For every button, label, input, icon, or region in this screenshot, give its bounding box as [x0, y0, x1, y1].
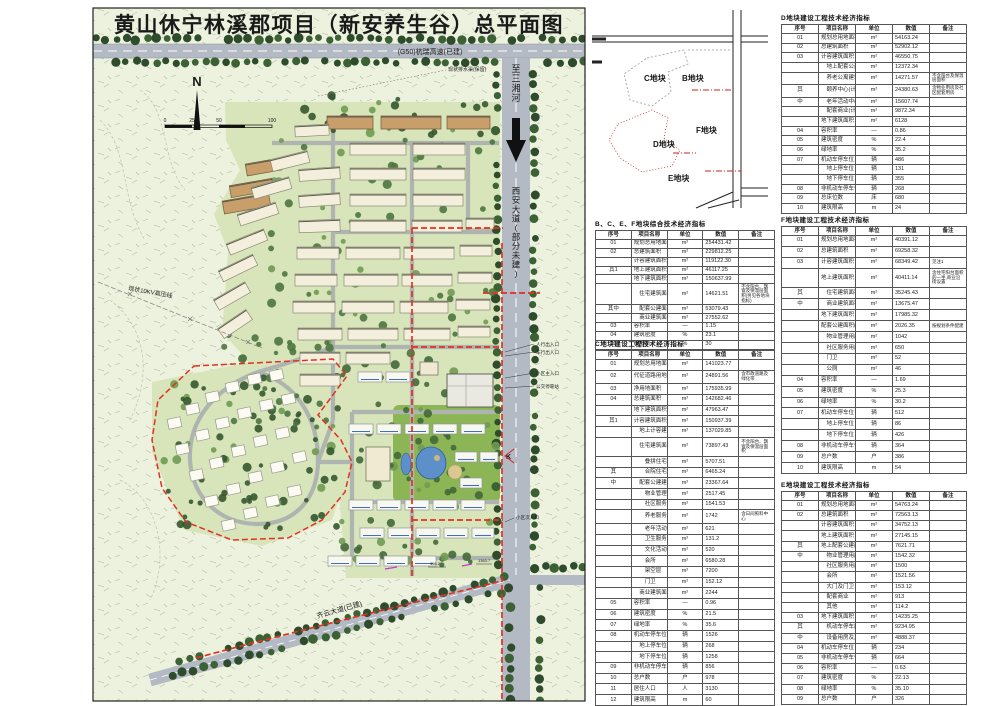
table-row: 06绿地率%30.2 [782, 397, 967, 408]
table-title-e: E地块建设工程技术经济指标 [781, 479, 967, 489]
table-cell: 254431.42 [703, 239, 739, 248]
table-cell: 总建筑面积 [631, 248, 667, 257]
table-title-comprehensive: B、C、E、F地块综合技术经济指标 [595, 218, 775, 228]
table-cell: 颐养中心(计容) [819, 85, 856, 97]
table-cell [930, 246, 967, 257]
table-row: 10建筑限高m24 [782, 204, 967, 214]
table-block-d: D地块建设工程技术经济指标 序号项目名称单位数值备注01规划总用地面积m²541… [781, 12, 967, 214]
table-block-c: C地块建设工程技术经济指标 序号项目名称单位数值备注01规划总用地面积m²141… [595, 338, 775, 706]
table-cell: 114.2 [893, 602, 930, 612]
table-row: 04容积率—0.86 [782, 126, 967, 136]
table-row: 其1计容建筑面积(小计)m²150937.39 [596, 416, 775, 427]
table-cell: 02 [596, 248, 632, 257]
table-cell: m² [856, 342, 893, 353]
table-cell [930, 613, 967, 623]
table-cell: 150937.39 [703, 416, 739, 427]
table-cell [596, 577, 632, 588]
table-cell [739, 499, 775, 510]
table-cell: 其 [782, 288, 819, 299]
table-cell: m² [667, 275, 703, 284]
table-cell: % [856, 397, 893, 408]
table-cell: 46550.75 [893, 53, 930, 63]
table-cell: 131.2 [703, 534, 739, 545]
table-cell: 326 [893, 694, 930, 704]
table-header-cell: 单位 [856, 25, 893, 34]
table-header-cell: 项目名称 [819, 492, 856, 501]
table-header-cell: 序号 [596, 231, 632, 240]
table-cell: 621 [703, 524, 739, 535]
table-cell: 地上建筑面积 [819, 531, 856, 541]
table-cell: 养老公寓建筑面积 [819, 72, 856, 84]
table-cell: 社区服务用房 [819, 562, 856, 572]
table-cell [739, 384, 775, 395]
table-row: 01规划总用地面积m²54163.24 [782, 33, 967, 43]
table-cell [739, 467, 775, 478]
table-row: 03计容建筑面积m²46550.75 [782, 53, 967, 63]
table-cell: 02 [596, 370, 632, 384]
table-header-cell: 数值 [893, 25, 930, 34]
table-row: 文化活动站m²520 [596, 545, 775, 556]
table-cell: 总户数 [631, 673, 667, 684]
table-cell: 01 [596, 239, 632, 248]
table-cell: 08 [782, 184, 819, 194]
table-cell [930, 664, 967, 674]
table-cell: 05 [596, 598, 632, 609]
table-cell: % [856, 386, 893, 397]
table-cell: 14235.25 [893, 613, 930, 623]
table-cell [739, 322, 775, 331]
table-cell [930, 397, 967, 408]
table-cell: 中 [782, 551, 819, 561]
table-row: 其中 配套公建面积m²53079.43 [596, 305, 775, 314]
table-row: 09总户数户326 [782, 694, 967, 704]
table-cell [930, 332, 967, 343]
table-cell: 268 [893, 184, 930, 194]
table-cell: 非机动车停车位 [631, 662, 667, 673]
table-cell [930, 551, 967, 561]
table-cell: 代征道路用地面积 [631, 370, 667, 384]
table-cell: 664 [893, 653, 930, 663]
table-cell [782, 364, 819, 375]
table-cell [739, 248, 775, 257]
table-cell: 17985.32 [893, 310, 930, 321]
table-cell: m² [667, 588, 703, 599]
table-cell: 54 [893, 462, 930, 473]
table-row: 其 颐养中心(计容)m²24380.63含物业用房及社区配套用房 [782, 85, 967, 97]
table-cell: 地上计容建筑面积 [631, 427, 667, 438]
table-cell [930, 97, 967, 107]
table-cell: 辆 [856, 408, 893, 419]
table-cell: m² [856, 623, 893, 633]
table-cell: 社区服务用房 [819, 342, 856, 353]
table-cell: 02 [782, 43, 819, 53]
table-cell: 容积率 [819, 375, 856, 386]
table-cell: 13675.47 [893, 299, 930, 310]
table-cell: 中 [782, 97, 819, 107]
table-cell: 1742 [703, 510, 739, 524]
table-cell: % [667, 609, 703, 620]
annex-building [420, 362, 438, 375]
table-cell [782, 310, 819, 321]
table-cell: 9872.34 [893, 107, 930, 117]
table-cell: 辆 [856, 419, 893, 430]
table-cell [930, 342, 967, 353]
table-cell: 计容建筑面积(小计) [631, 416, 667, 427]
table-cell: 居住人口 [631, 684, 667, 695]
table-cell: 配套公建面积(小计) [819, 321, 856, 332]
table-cell: m² [667, 427, 703, 438]
table-cell: 地下建筑面积(不计容) [631, 275, 667, 284]
indicator-table-e: 序号项目名称单位数值备注01规划总用地面积m²54763.2402总建筑面积m²… [781, 491, 967, 705]
table-cell: 650 [893, 342, 930, 353]
table-cell: 架空层 [631, 566, 667, 577]
table-cell: 9234.95 [893, 623, 930, 633]
table-cell: 119122.30 [703, 257, 739, 266]
table-cell [739, 673, 775, 684]
table-cell: m² [856, 85, 893, 97]
table-cell: 绿地率 [819, 146, 856, 156]
table-row: 地上建筑面积m²27145.15 [782, 531, 967, 541]
table-cell: 地上配套公建面积 [819, 62, 856, 72]
table-cell: 175935.99 [703, 384, 739, 395]
table-cell: 4888.37 [893, 633, 930, 643]
table-cell: m² [856, 592, 893, 602]
table-cell: m² [856, 116, 893, 126]
table-cell [739, 275, 775, 284]
table-header-cell: 备注 [739, 231, 775, 240]
table-cell: 会所 [819, 572, 856, 582]
key-plan: C地块 B地块 F地块 D地块 E地块 [592, 10, 768, 210]
table-cell: m² [856, 332, 893, 343]
table-cell: 04 [782, 643, 819, 653]
table-cell: 54163.24 [893, 33, 930, 43]
table-cell: m² [667, 545, 703, 556]
table-cell: 辆 [667, 662, 703, 673]
table-cell [930, 310, 967, 321]
table-cell: m² [667, 370, 703, 384]
table-cell [739, 652, 775, 663]
table-cell: 商业建筑面积 [819, 299, 856, 310]
table-row: 03容积率—1.15 [596, 322, 775, 331]
plaza-deck [448, 465, 462, 479]
table-cell [596, 314, 632, 323]
table-row: 会所m²1521.56 [782, 572, 967, 582]
table-header-cell: 备注 [930, 492, 967, 501]
table-cell: 辆 [856, 441, 893, 452]
table-cell: 规划总用地面积 [631, 239, 667, 248]
table-cell: 配套公建面积 [631, 305, 667, 314]
table-row: 计容建筑面积m²119122.30 [596, 257, 775, 266]
table-cell: % [856, 146, 893, 156]
table-cell: 计容建筑面积 [819, 521, 856, 531]
table-cell: 27552.62 [703, 314, 739, 323]
table-cell: 建筑限高 [819, 462, 856, 473]
table-cell: m² [667, 359, 703, 370]
table-cell: m² [667, 416, 703, 427]
table-cell [739, 257, 775, 266]
table-cell: 09 [596, 662, 632, 673]
table-cell: 计容建筑面积 [819, 257, 856, 268]
table-cell: 01 [782, 33, 819, 43]
table-cell: 住宅建筑面积 [631, 284, 667, 305]
table-cell: 01 [596, 359, 632, 370]
table-block-e: E地块建设工程技术经济指标 序号项目名称单位数值备注01规划总用地面积m²547… [781, 479, 967, 705]
table-header-cell: 项目名称 [631, 351, 667, 360]
table-cell: 35.2 [893, 146, 930, 156]
table-cell: 141023.77 [703, 359, 739, 370]
table-cell: % [856, 136, 893, 146]
table-cell: m² [667, 566, 703, 577]
table-cell: m² [667, 478, 703, 489]
table-cell: 辆 [856, 165, 893, 175]
table-header-cell: 序号 [782, 492, 819, 501]
table-cell: 47963.47 [703, 405, 739, 416]
table-cell [596, 284, 632, 305]
table-cell: 中 [782, 299, 819, 310]
table-cell [739, 566, 775, 577]
table-cell: 10 [782, 204, 819, 214]
table-cell [739, 239, 775, 248]
table-cell [596, 510, 632, 524]
table-cell: m² [856, 235, 893, 246]
table-cell: 1.69 [893, 375, 930, 386]
table-cell: 住宅建筑面积 [819, 288, 856, 299]
table-cell: 建筑密度 [819, 136, 856, 146]
table-cell: 03 [782, 53, 819, 63]
table-cell: 户 [667, 673, 703, 684]
table-cell [596, 437, 632, 456]
table-row: 中 物业管理用房m²1542.32 [782, 551, 967, 561]
table-cell: 见注1 [930, 257, 967, 268]
table-cell: 中 [596, 478, 632, 489]
table-row: 其 合院住宅m²6465.24 [596, 467, 775, 478]
table-cell [596, 545, 632, 556]
table-row: 计容建筑面积m²34752.13 [782, 521, 967, 531]
table-cell: 3130 [703, 684, 739, 695]
table-cell: m² [856, 500, 893, 510]
table-cell: m² [856, 43, 893, 53]
table-cell: 30.2 [893, 397, 930, 408]
table-cell [930, 116, 967, 126]
table-cell [930, 684, 967, 694]
table-cell: 913 [893, 592, 930, 602]
table-cell: 07 [782, 408, 819, 419]
table-cell: 69258.32 [893, 246, 930, 257]
table-row: 02总建筑面积m²229812.25 [596, 248, 775, 257]
table-cell: 150637.99 [703, 275, 739, 284]
table-cell: 容积率 [819, 664, 856, 674]
svg-text:100: 100 [268, 118, 277, 124]
table-cell: 386 [893, 452, 930, 463]
table-cell: 地上建筑面积 [631, 266, 667, 275]
table-cell: 床 [856, 194, 893, 204]
table-cell: m² [667, 556, 703, 567]
table-cell [930, 592, 967, 602]
table-header-cell: 项目名称 [631, 231, 667, 240]
table-cell: 1500 [893, 562, 930, 572]
table-cell: m² [856, 364, 893, 375]
table-cell [930, 386, 967, 397]
table-row: 01规划总用地面积m²40391.12 [782, 235, 967, 246]
table-cell: 54763.24 [893, 500, 930, 510]
table-cell: 23367.64 [703, 478, 739, 489]
table-row: 地下建筑面积m²17985.32 [782, 310, 967, 321]
table-row: 社区服务用房m²1541.53 [596, 499, 775, 510]
table-cell: 04 [782, 375, 819, 386]
table-cell [596, 275, 632, 284]
table-cell [739, 427, 775, 438]
table-cell: 08 [596, 630, 632, 641]
table-cell: 06 [782, 664, 819, 674]
table-cell: — [667, 322, 703, 331]
table-cell [930, 452, 967, 463]
table-row: 地下停车位辆355 [782, 175, 967, 185]
table-cell: 1258 [703, 652, 739, 663]
table-cell: 含日间照料中心 [739, 510, 775, 524]
table-cell: 物业管理用房 [631, 489, 667, 500]
table-cell [739, 577, 775, 588]
table-cell: 52902.12 [893, 43, 930, 53]
table-cell: m [856, 204, 893, 214]
table-cell: 地上建筑面积 [819, 268, 856, 288]
table-cell [930, 375, 967, 386]
table-cell [782, 531, 819, 541]
table-cell: 计容建筑面积 [631, 257, 667, 266]
table-row: 住宅建筑面积m²73897.43不含阳台、飘窗及保温层面积 [596, 437, 775, 456]
svg-text:N: N [192, 74, 201, 89]
table-row: 03净用地面积m²175935.99 [596, 384, 775, 395]
table-cell [930, 107, 967, 117]
table-cell [739, 489, 775, 500]
table-cell: 机动车停车位 [819, 643, 856, 653]
table-cell: 268 [703, 641, 739, 652]
table-cell: 25.3 [893, 386, 930, 397]
table-cell [739, 588, 775, 599]
table-row: 地下停车位辆1258 [596, 652, 775, 663]
table-row: 地下建筑面积(不计容)m²150637.99 [596, 275, 775, 284]
table-cell: 09 [782, 694, 819, 704]
table-header-cell: 序号 [782, 25, 819, 34]
table-cell: 0.63 [893, 664, 930, 674]
table-row: 住宅建筑面积m²14621.51不含阳台、飘窗及保温层面积(另见各地块指标) [596, 284, 775, 305]
table-cell: 地下建筑面积 [819, 116, 856, 126]
table-cell [739, 641, 775, 652]
table-cell: 物业管理用房 [819, 332, 856, 343]
table-cell: 总建筑面积 [819, 246, 856, 257]
table-cell: 总建筑面积 [819, 43, 856, 53]
table-cell [782, 116, 819, 126]
table-cell [930, 623, 967, 633]
table-cell: 会所 [631, 556, 667, 567]
table-cell [596, 457, 632, 468]
table-cell [782, 572, 819, 582]
table-cell: 合院住宅 [631, 467, 667, 478]
table-cell: m² [856, 602, 893, 612]
table-cell: 计容建筑面积 [819, 53, 856, 63]
table-cell: m² [856, 521, 893, 531]
table-cell: 40391.12 [893, 235, 930, 246]
table-cell: 其中 [596, 305, 632, 314]
table-cell: 地上停车位 [819, 419, 856, 430]
indicator-table-c: 序号项目名称单位数值备注01规划总用地面积m²141023.7702代征道路用地… [595, 350, 775, 706]
table-cell: 27145.15 [893, 531, 930, 541]
table-cell: 非机动车停车位 [819, 184, 856, 194]
table-cell [782, 419, 819, 430]
table-cell: 2026.35 [893, 321, 930, 332]
table-cell: 05 [782, 653, 819, 663]
table-cell [930, 62, 967, 72]
table-cell: 10 [596, 673, 632, 684]
table-cell: 公厕 [819, 364, 856, 375]
site-plan: K N 0 25 50 100 [0, 0, 586, 706]
table-cell: 商业建筑面积 [631, 314, 667, 323]
table-cell: 总户数 [819, 694, 856, 704]
table-cell: 856 [703, 662, 739, 673]
table-cell [596, 641, 632, 652]
table-cell: 地下停车位 [631, 652, 667, 663]
table-cell [930, 462, 967, 473]
table-cell [782, 268, 819, 288]
table-cell: 地下建筑面积 [631, 405, 667, 416]
table-row: 08非机动车停车位辆268 [782, 184, 967, 194]
table-cell: 含市政道路及绿化带 [739, 370, 775, 384]
table-row: 04容积率—1.69 [782, 375, 967, 386]
table-cell: 地下建筑面积 [819, 613, 856, 623]
table-cell: m² [667, 305, 703, 314]
table-cell: m² [667, 534, 703, 545]
table-cell: 建筑限高 [819, 204, 856, 214]
table-row: 03计容建筑面积m²68349.42见注1 [782, 257, 967, 268]
table-cell: m² [667, 577, 703, 588]
table-cell: 486 [893, 155, 930, 165]
table-cell: m² [667, 489, 703, 500]
table-title-d: D地块建设工程技术经济指标 [781, 12, 967, 22]
table-header-cell: 单位 [667, 231, 703, 240]
table-cell: 5707.51 [703, 457, 739, 468]
table-cell: 总户数 [819, 452, 856, 463]
svg-text:50: 50 [216, 118, 222, 124]
table-cell: m² [856, 541, 893, 551]
table-cell [930, 184, 967, 194]
table-cell: 137029.85 [703, 427, 739, 438]
highway-g50 [93, 44, 585, 58]
table-cell: m [856, 462, 893, 473]
table-cell: 辆 [856, 155, 893, 165]
table-cell: 40411.14 [893, 268, 930, 288]
table-cell [782, 72, 819, 84]
table-cell: 叠拼住宅 [631, 457, 667, 468]
table-row: 10总户数户978 [596, 673, 775, 684]
table-cell: 06 [782, 397, 819, 408]
table-cell [739, 305, 775, 314]
table-cell [930, 146, 967, 156]
table-row: 06容积率—0.63 [782, 664, 967, 674]
table-cell: m² [856, 33, 893, 43]
table-row: 架空层m²7200 [596, 566, 775, 577]
table-row: 05非机动车停车位辆664 [782, 653, 967, 663]
table-cell [782, 332, 819, 343]
table-cell: 规划总用地面积 [819, 500, 856, 510]
table-cell: 其 [782, 541, 819, 551]
annotation-2: 车行出入口 [536, 349, 559, 356]
table-cell: 1541.53 [703, 499, 739, 510]
table-row: 07机动车停车位辆486 [782, 155, 967, 165]
table-cell [930, 364, 967, 375]
table-cell [930, 602, 967, 612]
table-cell: 中 [782, 633, 819, 643]
table-cell [739, 314, 775, 323]
table-cell [930, 288, 967, 299]
